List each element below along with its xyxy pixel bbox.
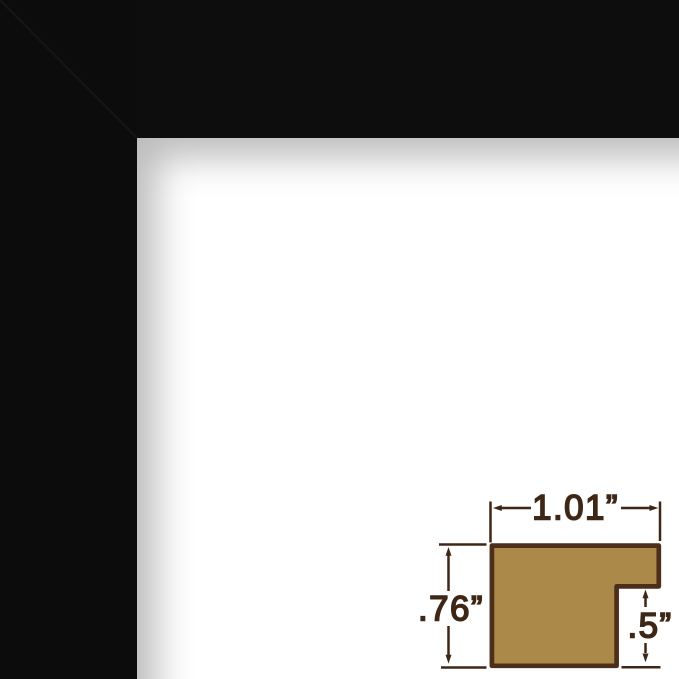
svg-text:1.01”: 1.01”	[532, 489, 619, 528]
svg-text:.5”: .5”	[627, 607, 672, 646]
svg-text:.76”: .76”	[418, 590, 484, 629]
